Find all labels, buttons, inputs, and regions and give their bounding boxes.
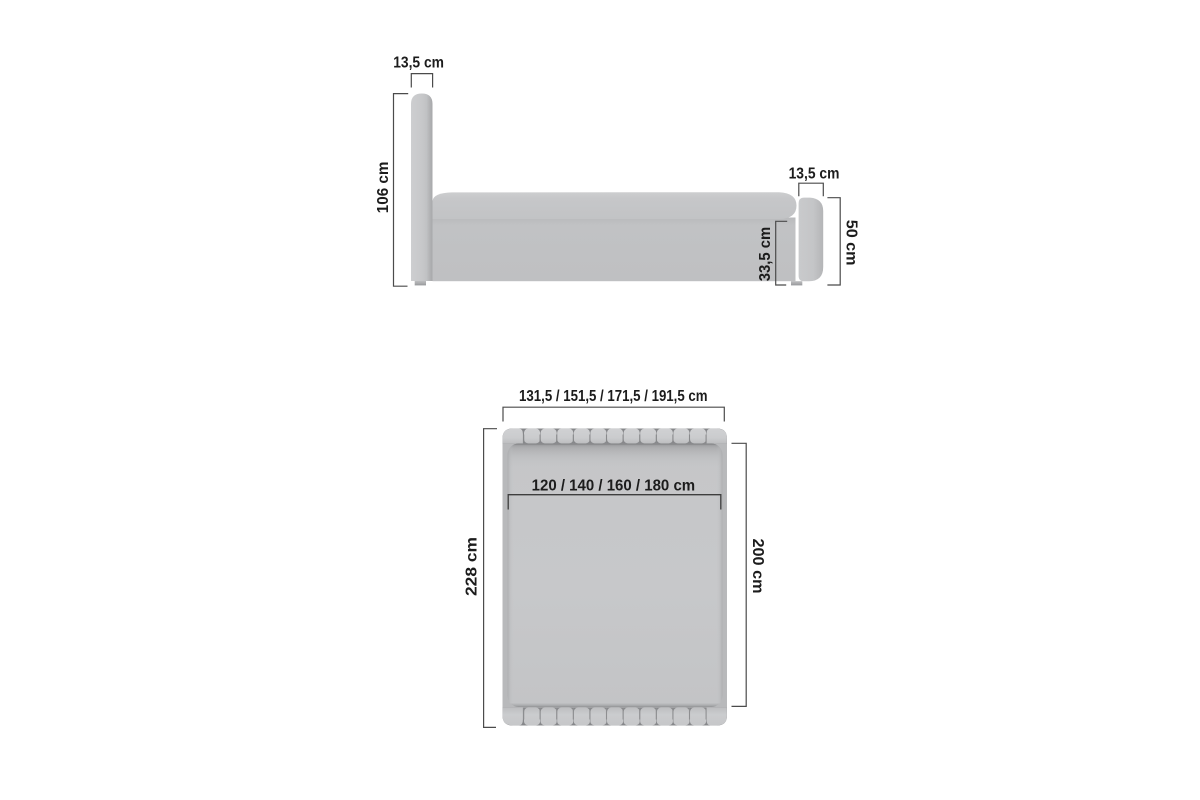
svg-text:228 cm: 228 cm [464, 537, 481, 596]
svg-text:131,5 / 151,5 / 171,5 / 191,5: 131,5 / 151,5 / 171,5 / 191,5 cm [519, 388, 708, 405]
svg-text:33,5 cm: 33,5 cm [757, 227, 774, 281]
svg-text:50 cm: 50 cm [842, 220, 859, 266]
svg-text:106 cm: 106 cm [375, 162, 392, 214]
svg-text:13,5 cm: 13,5 cm [789, 165, 840, 182]
svg-text:120 / 140 / 160 / 180 cm: 120 / 140 / 160 / 180 cm [532, 477, 696, 494]
svg-text:200 cm: 200 cm [749, 539, 766, 594]
svg-text:13,5 cm: 13,5 cm [393, 55, 444, 72]
